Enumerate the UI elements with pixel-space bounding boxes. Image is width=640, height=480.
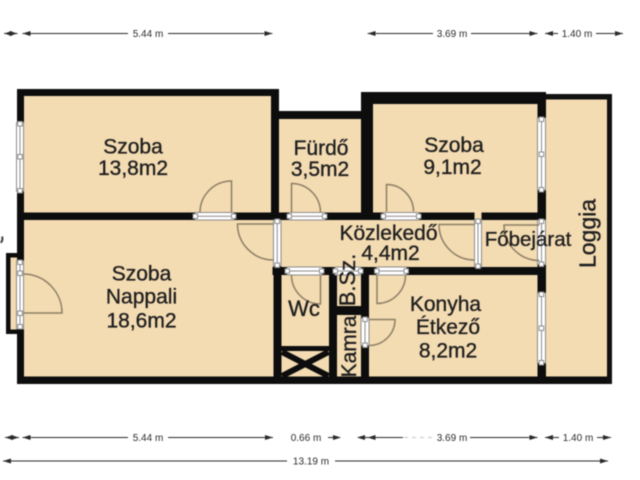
svg-text:18,6m2: 18,6m2 xyxy=(106,310,176,333)
svg-text:13.19 m: 13.19 m xyxy=(293,457,329,468)
svg-text:3.69 m: 3.69 m xyxy=(437,433,468,444)
svg-text:3,5m2: 3,5m2 xyxy=(291,158,349,181)
svg-text:4,4m2: 4,4m2 xyxy=(361,242,419,265)
svg-text:8,2m2: 8,2m2 xyxy=(419,340,477,363)
svg-text:0.66 m: 0.66 m xyxy=(291,433,322,444)
svg-text:5.44 m: 5.44 m xyxy=(133,433,164,444)
svg-text:Szoba: Szoba xyxy=(424,134,484,157)
svg-text:Főbejárat: Főbejárat xyxy=(485,228,572,251)
svg-text:Wc: Wc xyxy=(288,296,320,321)
svg-text:1.40 m: 1.40 m xyxy=(562,29,593,40)
svg-text:B.Sz.: B.Sz. xyxy=(335,254,360,307)
svg-text:5.44 m: 5.44 m xyxy=(133,29,164,40)
svg-text:3.69 m: 3.69 m xyxy=(437,29,468,40)
svg-text:Szoba: Szoba xyxy=(112,263,172,286)
svg-text:Konyha: Konyha xyxy=(410,293,482,316)
svg-text:Nappali: Nappali xyxy=(106,286,177,309)
svg-text:Szoba: Szoba xyxy=(103,136,163,159)
svg-text:Loggia: Loggia xyxy=(575,199,601,268)
svg-text:Kamra: Kamra xyxy=(338,315,361,377)
svg-text:1.40 m: 1.40 m xyxy=(563,433,594,444)
svg-text:13,8m2: 13,8m2 xyxy=(98,157,168,180)
svg-text:9,1m2: 9,1m2 xyxy=(423,156,481,179)
svg-text:Fürdő: Fürdő xyxy=(294,137,349,160)
svg-text:Étkező: Étkező xyxy=(416,316,480,339)
